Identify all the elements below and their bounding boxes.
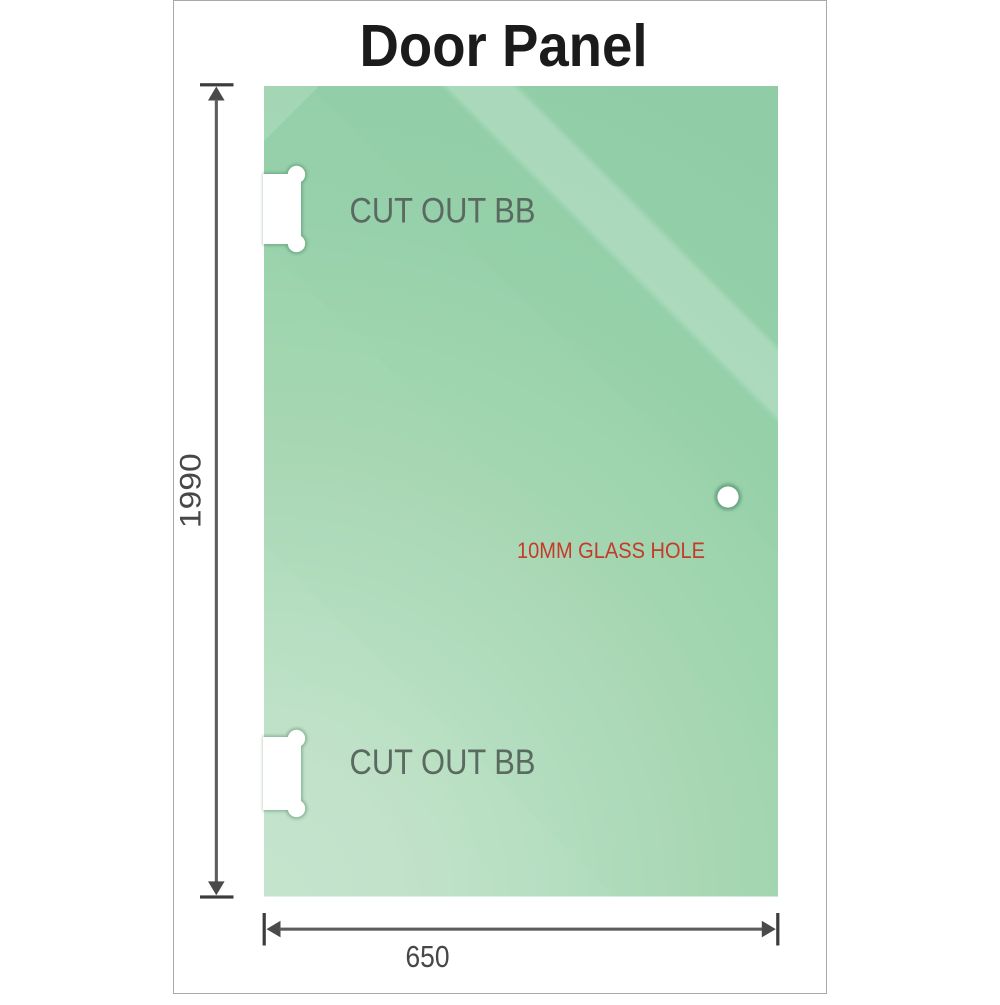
svg-text:CUT OUT BB: CUT OUT BB bbox=[350, 743, 536, 782]
svg-text:CUT OUT BB: CUT OUT BB bbox=[350, 192, 536, 231]
svg-text:Door Panel: Door Panel bbox=[360, 13, 648, 79]
svg-text:650: 650 bbox=[406, 939, 450, 974]
svg-text:1990: 1990 bbox=[174, 453, 207, 528]
svg-text:10MM GLASS HOLE: 10MM GLASS HOLE bbox=[517, 538, 705, 563]
